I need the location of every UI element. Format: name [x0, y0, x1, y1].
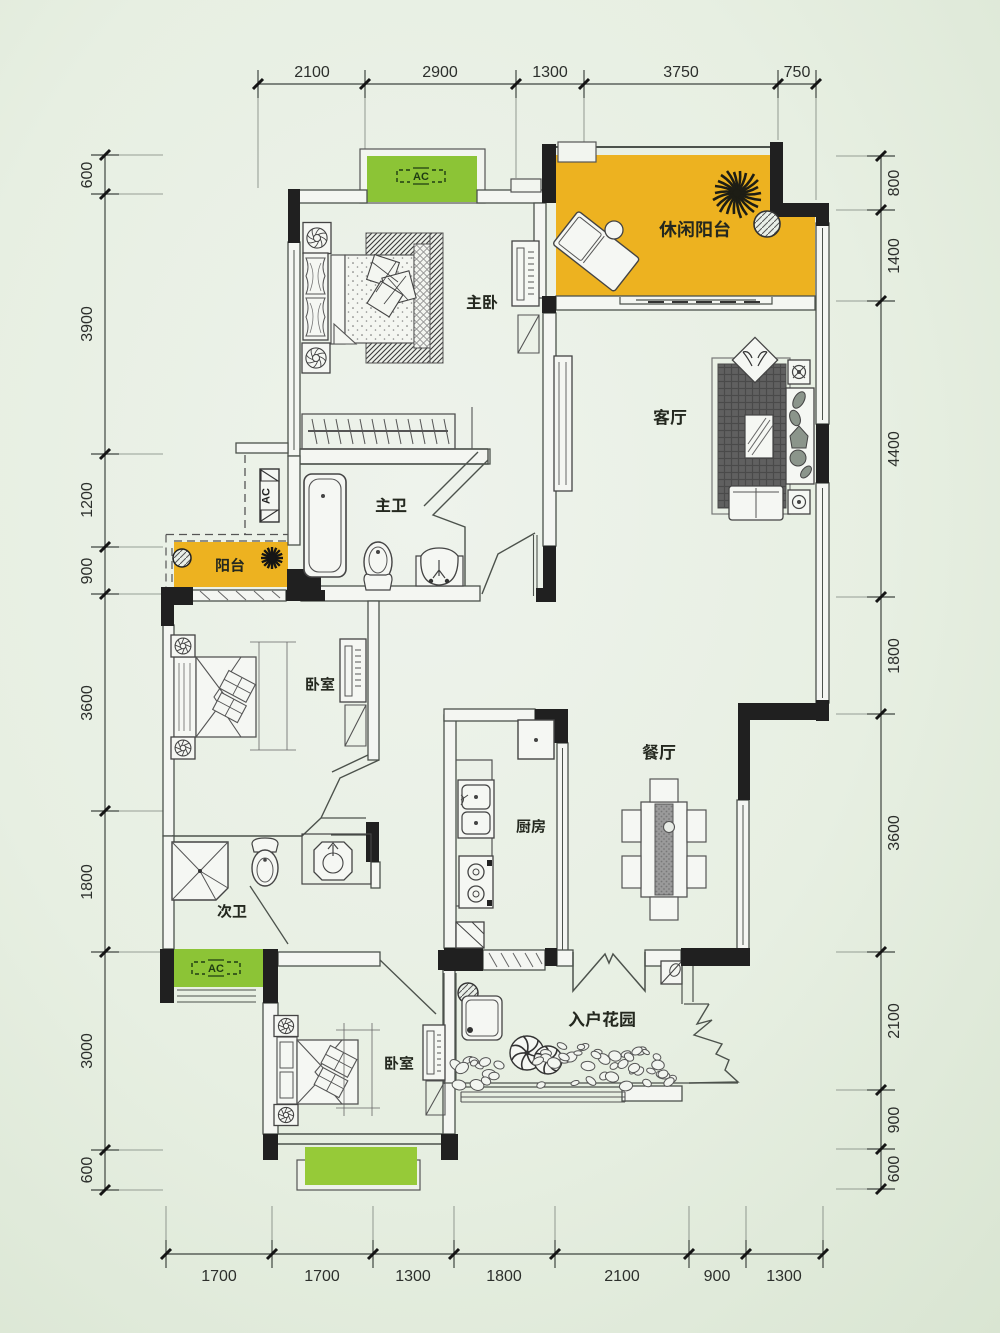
svg-text:900: 900 — [886, 1107, 903, 1134]
svg-text:600: 600 — [886, 1156, 903, 1183]
svg-text:1400: 1400 — [886, 238, 903, 274]
svg-text:1300: 1300 — [766, 1268, 802, 1285]
svg-text:1800: 1800 — [79, 864, 96, 900]
svg-text:900: 900 — [79, 558, 96, 585]
svg-text:3750: 3750 — [663, 64, 699, 81]
svg-text:2100: 2100 — [886, 1003, 903, 1039]
svg-text:AC: AC — [261, 488, 273, 504]
svg-text:2100: 2100 — [604, 1268, 640, 1285]
svg-text:3900: 3900 — [79, 306, 96, 342]
svg-text:1300: 1300 — [532, 64, 568, 81]
svg-text:1200: 1200 — [79, 482, 96, 518]
svg-text:1700: 1700 — [201, 1268, 237, 1285]
svg-text:2100: 2100 — [294, 64, 330, 81]
svg-text:750: 750 — [784, 64, 811, 81]
svg-text:900: 900 — [704, 1268, 731, 1285]
svg-text:3600: 3600 — [79, 685, 96, 721]
svg-text:1300: 1300 — [395, 1268, 431, 1285]
svg-text:1800: 1800 — [486, 1268, 522, 1285]
svg-text:600: 600 — [79, 1157, 96, 1184]
svg-text:1800: 1800 — [886, 638, 903, 674]
svg-text:AC: AC — [413, 171, 429, 183]
svg-text:3000: 3000 — [79, 1033, 96, 1069]
svg-text:1700: 1700 — [304, 1268, 340, 1285]
svg-text:2900: 2900 — [422, 64, 458, 81]
svg-text:3600: 3600 — [886, 815, 903, 851]
svg-text:AC: AC — [208, 963, 224, 975]
svg-text:600: 600 — [79, 162, 96, 189]
svg-text:800: 800 — [886, 170, 903, 197]
svg-text:4400: 4400 — [886, 431, 903, 467]
